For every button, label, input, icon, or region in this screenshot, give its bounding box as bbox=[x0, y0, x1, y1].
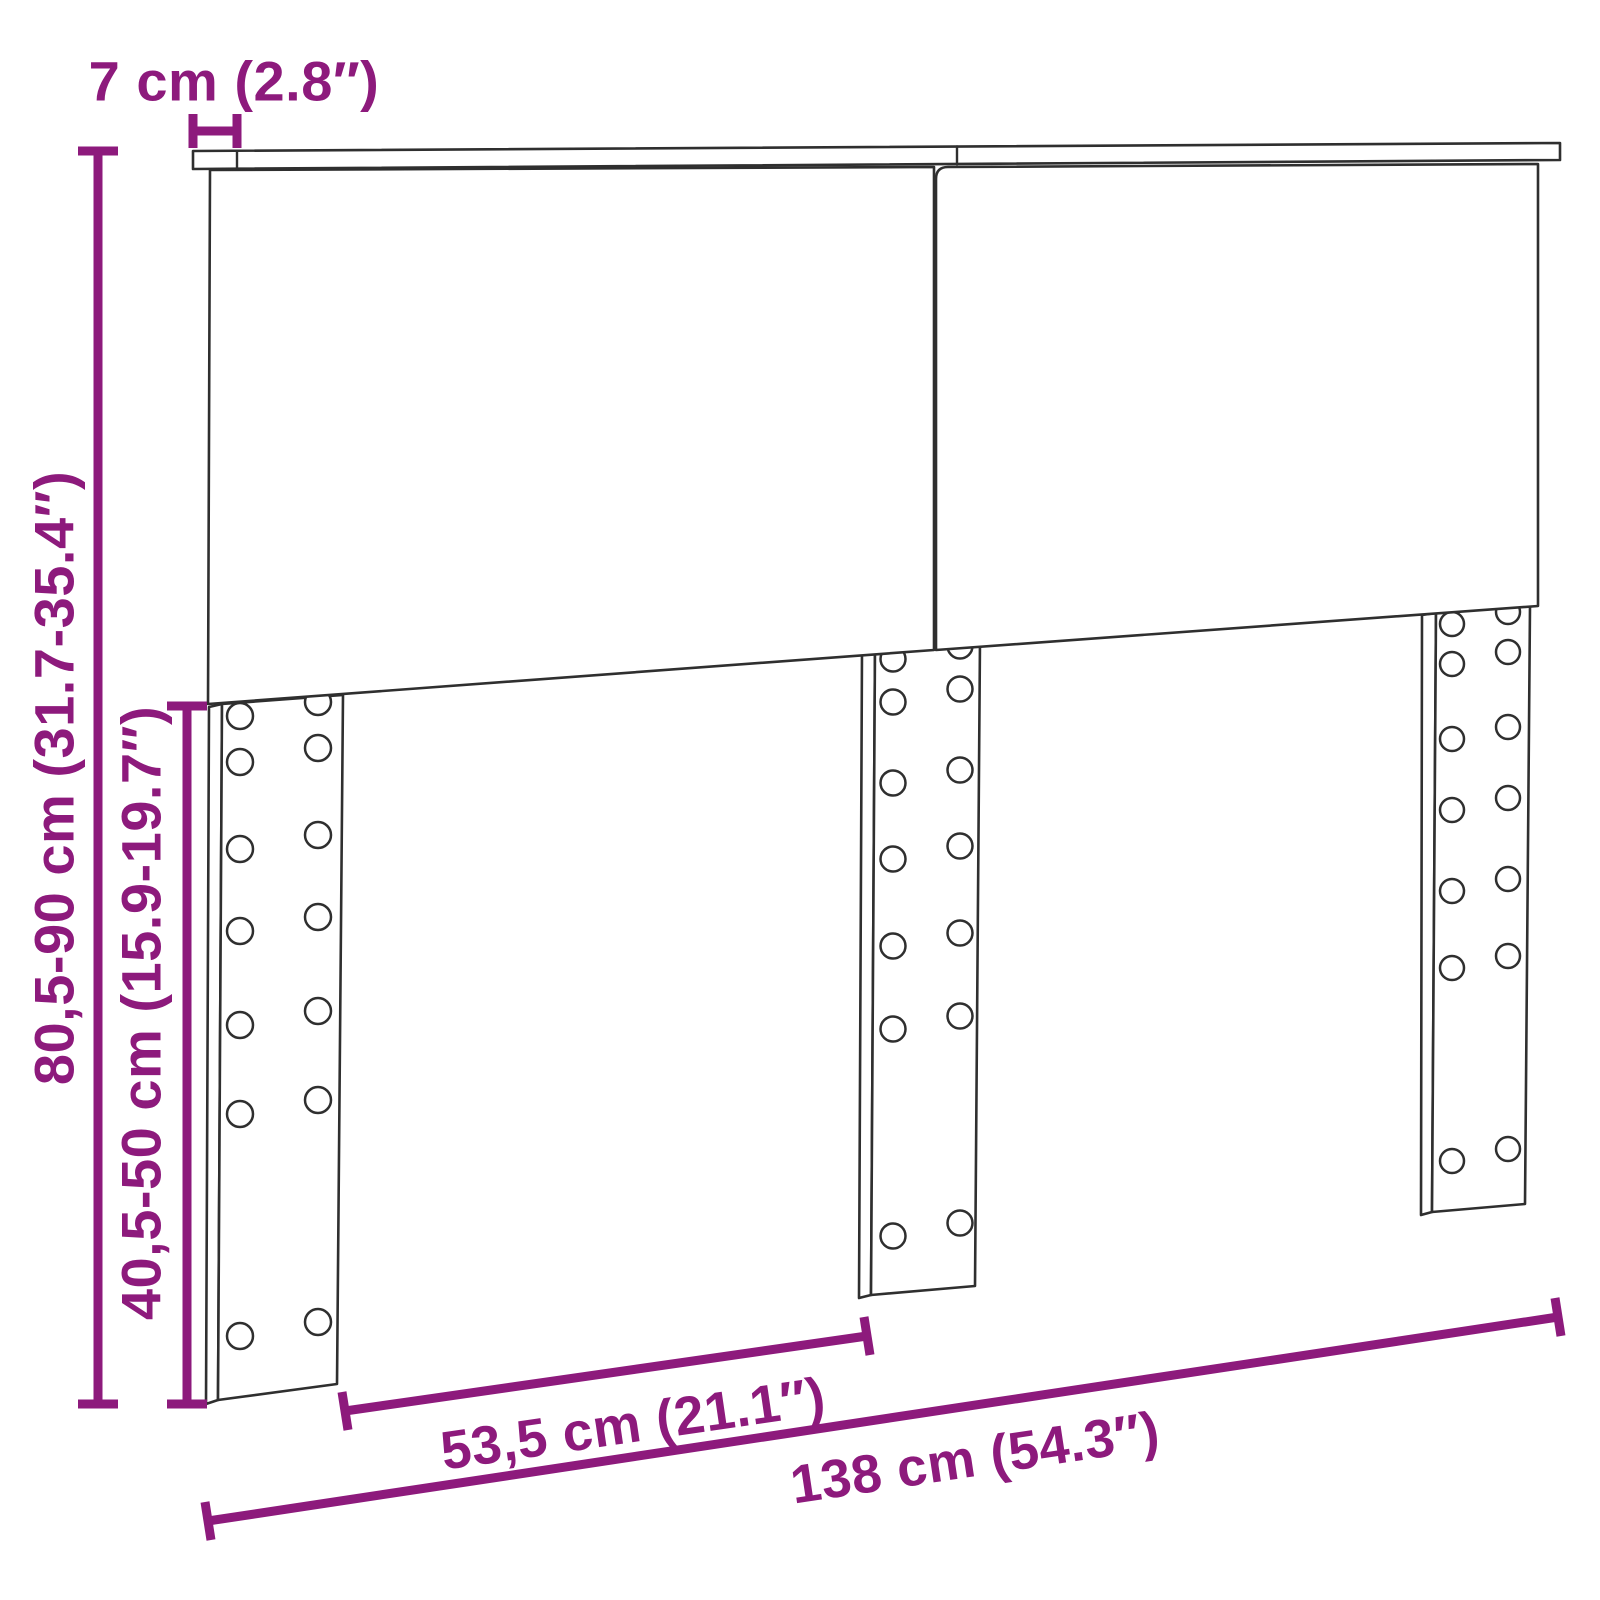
headboard-panel-left bbox=[208, 167, 934, 704]
screw-hole bbox=[1440, 956, 1464, 980]
screw-hole bbox=[948, 677, 973, 702]
strip-front-face bbox=[1432, 606, 1530, 1212]
screw-hole bbox=[881, 847, 906, 872]
screw-hole bbox=[881, 934, 906, 959]
dimension-diagram: 7 cm (2.8″) 80,5-90 cm (31.7-35.4″) 40,5… bbox=[0, 0, 1600, 1600]
screw-hole bbox=[948, 834, 973, 859]
dimension-strip-height: 40,5-50 cm (15.9-19.7″) bbox=[110, 706, 208, 1404]
mounting-strip-center bbox=[859, 634, 980, 1299]
dimension-label-total-width: 138 cm (54.3″) bbox=[787, 1401, 1164, 1516]
strip-front-face bbox=[871, 640, 980, 1295]
screw-hole bbox=[881, 690, 906, 715]
dimension-total-height: 80,5-90 cm (31.7-35.4″) bbox=[23, 151, 119, 1404]
screw-hole bbox=[1440, 798, 1464, 822]
screw-hole bbox=[227, 703, 253, 729]
screw-hole bbox=[881, 771, 906, 796]
screw-hole bbox=[1496, 640, 1520, 664]
dimension-label-total-height: 80,5-90 cm (31.7-35.4″) bbox=[23, 471, 86, 1085]
screw-hole bbox=[948, 1004, 973, 1029]
screw-hole bbox=[227, 836, 253, 862]
screw-hole bbox=[1496, 944, 1520, 968]
dimension-tick bbox=[205, 1502, 211, 1540]
screw-hole bbox=[227, 1323, 253, 1349]
screw-hole bbox=[1440, 612, 1464, 636]
screw-hole bbox=[1440, 879, 1464, 903]
headboard-diagram-canvas: 7 cm (2.8″) 80,5-90 cm (31.7-35.4″) 40,5… bbox=[0, 0, 1600, 1600]
screw-hole bbox=[227, 749, 253, 775]
screw-hole bbox=[1440, 1149, 1464, 1173]
dimension-total-width: 138 cm (54.3″) bbox=[205, 1298, 1561, 1540]
screw-hole bbox=[948, 758, 973, 783]
mounting-strip-left bbox=[206, 689, 343, 1404]
screw-hole bbox=[305, 822, 331, 848]
screw-hole bbox=[948, 1211, 973, 1236]
screw-hole bbox=[305, 998, 331, 1024]
strip-front-face bbox=[218, 695, 343, 1400]
screw-hole bbox=[227, 1101, 253, 1127]
screw-hole bbox=[1496, 1137, 1520, 1161]
dimension-board-depth: 7 cm (2.8″) bbox=[89, 50, 380, 149]
screw-hole bbox=[227, 918, 253, 944]
dimension-label-board-depth: 7 cm (2.8″) bbox=[89, 50, 380, 113]
screw-hole bbox=[1496, 715, 1520, 739]
screw-hole bbox=[1496, 786, 1520, 810]
dimension-tick bbox=[1555, 1298, 1561, 1336]
screw-hole bbox=[1440, 652, 1464, 676]
screw-hole bbox=[305, 1087, 331, 1113]
dimension-label-strip-height: 40,5-50 cm (15.9-19.7″) bbox=[110, 706, 173, 1320]
mounting-strip-right bbox=[1421, 600, 1530, 1215]
headboard-panel-right bbox=[936, 164, 1538, 650]
dimension-tick bbox=[864, 1317, 870, 1355]
screw-hole bbox=[305, 1309, 331, 1335]
screw-hole bbox=[305, 735, 331, 761]
dimension-label-strip-offset: 53,5 cm (21.1″) bbox=[437, 1366, 829, 1481]
dimension-tick bbox=[342, 1392, 348, 1430]
screw-hole bbox=[881, 1224, 906, 1249]
screw-hole bbox=[227, 1012, 253, 1038]
screw-hole bbox=[881, 1017, 906, 1042]
screw-hole bbox=[1496, 867, 1520, 891]
screw-hole bbox=[305, 904, 331, 930]
screw-hole bbox=[1440, 727, 1464, 751]
screw-hole bbox=[948, 921, 973, 946]
